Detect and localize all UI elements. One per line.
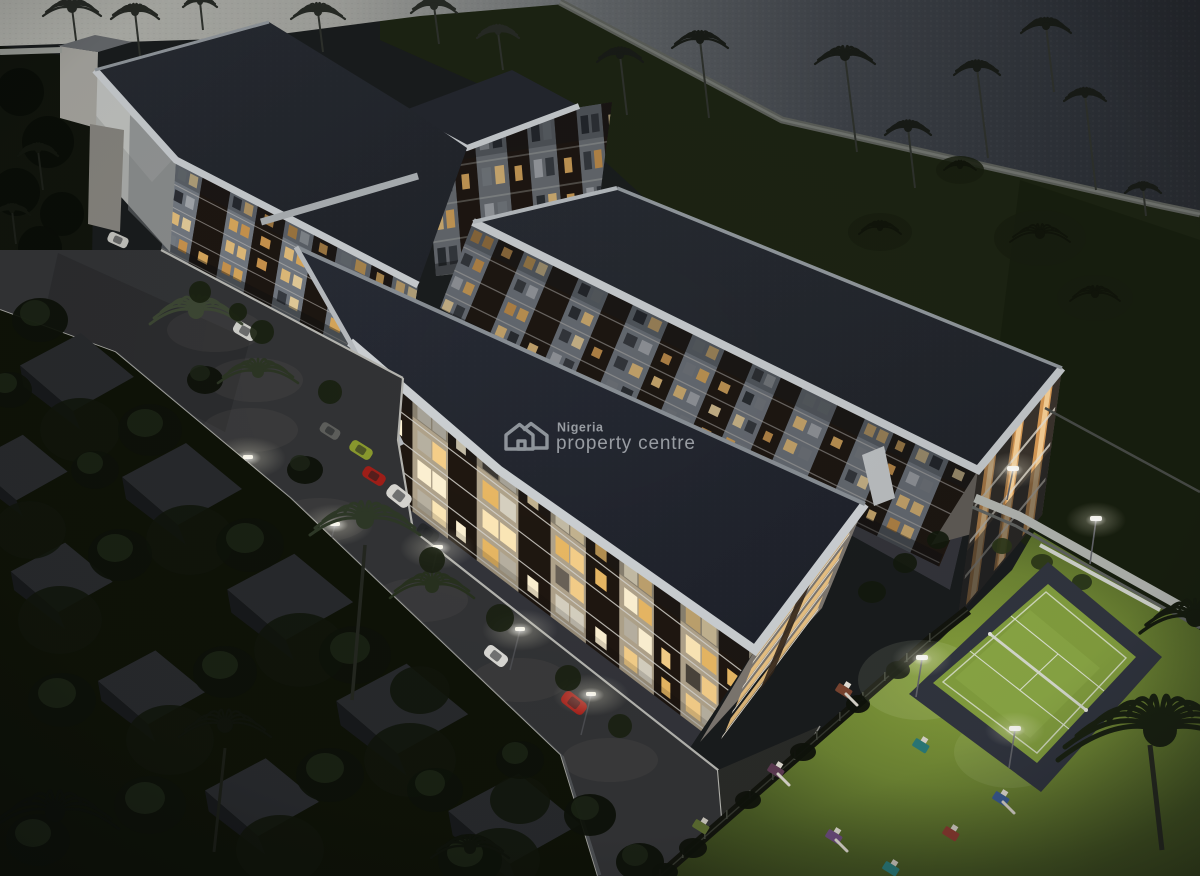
- svg-text:property centre: property centre: [556, 433, 696, 454]
